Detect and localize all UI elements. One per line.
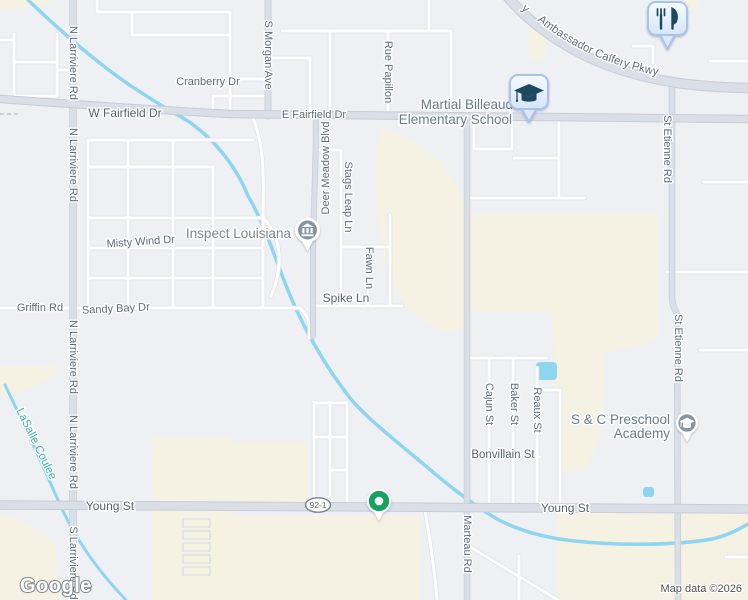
poi-label-preschool-line2[interactable]: Academy <box>614 426 671 441</box>
google-logo[interactable]: Google <box>20 575 92 597</box>
marker-center-dot <box>375 497 384 506</box>
street-label-st-etienne-rd-south: St Etienne Rd <box>672 314 684 382</box>
poi-label-inspect-louisiana[interactable]: Inspect Louisiana <box>186 226 292 241</box>
street-label-n-larriviere-rd-3: N Larriviere Rd <box>67 320 79 394</box>
street-label-baker-st: Baker St <box>508 383 520 425</box>
street-label-young-st-east: Young St <box>541 501 590 515</box>
street-label-fawn-ln: Fawn Ln <box>363 247 375 289</box>
street-label-n-larriviere-rd-4: N Larriviere Rd <box>67 415 79 489</box>
route-shield-label: 92-1 <box>309 500 326 510</box>
pond-small <box>643 487 654 497</box>
street-label-marteau-rd: Marteau Rd <box>461 515 473 572</box>
street-label-e-fairfield-dr: E Fairfield Dr <box>282 109 347 121</box>
street-label-spike-ln: Spike Ln <box>323 291 370 305</box>
route-shield-92-1: 92-1 <box>306 498 331 512</box>
street-label-reaux-st: Reaux St <box>531 387 543 432</box>
poi-label-school-line1[interactable]: Martial Billeaud <box>421 97 513 112</box>
street-label-stags-leap-ln: Stags Leap Ln <box>342 162 354 233</box>
street-label-cranberry-dr: Cranberry Dr <box>176 76 240 88</box>
map-canvas[interactable]: Cranberry Dr W Fairfield Dr E Fairfield … <box>0 0 748 600</box>
street-label-st-etienne-rd-north: St Etienne Rd <box>661 115 673 183</box>
street-label-n-larriviere-rd-2: N Larriviere Rd <box>67 128 79 202</box>
street-label-n-larriviere-rd-1: N Larriviere Rd <box>67 26 79 100</box>
street-label-cajun-st: Cajun St <box>483 383 495 425</box>
street-label-s-morgan-ave: S Morgan Ave <box>262 21 274 90</box>
map-attribution: Map data ©2026 <box>661 583 743 595</box>
street-label-young-st-west: Young St <box>86 499 135 513</box>
poi-label-school-line2[interactable]: Elementary School <box>399 112 512 127</box>
poi-label-preschool-line1[interactable]: S & C Preschool <box>571 412 670 427</box>
street-label-griffin-rd: Griffin Rd <box>17 302 63 314</box>
street-label-deer-meadow-blvd: Deer Meadow Blvd <box>320 122 332 215</box>
street-label-w-fairfield-dr: W Fairfield Dr <box>88 106 161 120</box>
street-label-rue-papillon: Rue Papillon <box>382 41 394 103</box>
street-label-bonvillain-st: Bonvillain St <box>471 449 535 461</box>
